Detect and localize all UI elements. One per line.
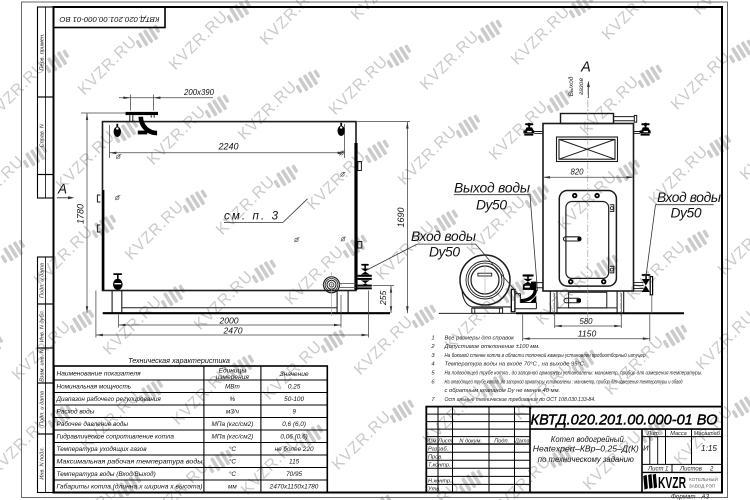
svg-text:Справ. N: Справ. N	[40, 123, 46, 147]
svg-text:2240: 2240	[217, 142, 238, 152]
svg-text:Подп.: Подп.	[494, 438, 509, 444]
svg-text:4: 4	[431, 362, 434, 368]
svg-text:%: %	[230, 396, 236, 403]
svg-text:Ост альные технические требова: Ост альные технические требования по ОСТ…	[445, 397, 596, 403]
svg-text:Габариты котла (длинна х ширин: Габариты котла (длинна х ширина х высота…	[57, 482, 203, 490]
svg-text:1150: 1150	[578, 329, 597, 339]
svg-text:70/95: 70/95	[286, 471, 302, 478]
svg-text:Лит.: Лит.	[646, 431, 660, 437]
svg-text:ЗАВОД РЭП: ЗАВОД РЭП	[689, 483, 715, 488]
svg-text:Инв. N дубл.: Инв. N дубл.	[40, 310, 46, 342]
svg-text:Формат: Формат	[671, 493, 696, 500]
svg-text:1:15: 1:15	[701, 444, 717, 453]
svg-text:Масса: Масса	[670, 431, 687, 437]
svg-text:0,6 (6,0): 0,6 (6,0)	[282, 421, 306, 428]
svg-text:Вход воды: Вход воды	[657, 190, 721, 205]
svg-text:Подп. и дата: Подп. и дата	[40, 391, 46, 426]
svg-text:Вход воды: Вход воды	[411, 229, 476, 244]
svg-text:50-100: 50-100	[284, 396, 304, 403]
svg-text:°С: °С	[229, 445, 237, 453]
svg-text:2: 2	[709, 467, 714, 473]
svg-text:Выход воды: Выход воды	[454, 180, 530, 195]
svg-text:Утв.: Утв.	[427, 487, 441, 493]
svg-text:м3/ч: м3/ч	[226, 408, 240, 415]
svg-text:МВт: МВт	[225, 383, 241, 390]
svg-text:газов: газов	[578, 78, 585, 95]
svg-text:Разраб.: Разраб.	[428, 446, 448, 452]
svg-text:На подводящей трубе котла , д: На подводящей трубе котла , до запорной …	[445, 370, 703, 377]
svg-text:1690: 1690	[396, 207, 406, 227]
svg-text:N докум.: N докум.	[459, 438, 482, 444]
svg-text:Допустимое отклонение ±100 мм: Допустимое отклонение ±100 мм.	[444, 344, 540, 350]
svg-text:Лист: Лист	[647, 467, 663, 473]
svg-text:°С: °С	[229, 470, 237, 478]
svg-text:измерения: измерения	[216, 374, 249, 381]
svg-text:КВТД.020.201.00.000-01 ВО: КВТД.020.201.00.000-01 ВО	[59, 15, 159, 24]
svg-text:Heatexpert–КВр–0,25–Д(К): Heatexpert–КВр–0,25–Д(К)	[533, 445, 639, 454]
svg-text:Температура уходящих газов: Температура уходящих газов	[57, 445, 148, 453]
svg-text:КОТЕЛЬНЫЙ: КОТЕЛЬНЫЙ	[689, 475, 718, 482]
svg-text:А: А	[580, 60, 591, 76]
svg-text:Подп. и дата: Подп. и дата	[40, 263, 46, 298]
svg-text:2000: 2000	[218, 315, 238, 325]
svg-text:2470: 2470	[222, 325, 242, 335]
svg-text:1780: 1780	[76, 204, 86, 224]
svg-text:Взам. инв. N: Взам. инв. N	[40, 348, 46, 382]
svg-text:200х390: 200х390	[183, 88, 215, 97]
svg-text:1: 1	[665, 467, 668, 473]
svg-text:Масштаб: Масштаб	[694, 431, 721, 437]
svg-text:Пров.: Пров.	[428, 454, 443, 460]
svg-text:Дата: Дата	[514, 438, 530, 444]
svg-text:Рабочее давление воды: Рабочее давление воды	[57, 420, 129, 428]
svg-text:Выход: Выход	[567, 76, 575, 96]
svg-text:0,06 (0,6): 0,06 (0,6)	[280, 433, 307, 440]
svg-text:°С: °С	[229, 457, 237, 465]
svg-text:Техническая характеристика: Техническая характеристика	[128, 356, 230, 365]
svg-text:KVZR: KVZR	[658, 475, 686, 492]
svg-text:не более 220: не более 220	[275, 445, 314, 453]
svg-text:Номинальная мощность: Номинальная мощность	[57, 383, 132, 390]
svg-text:МПа (кгс/см2): МПа (кгс/см2)	[212, 433, 254, 440]
svg-text:мм: мм	[228, 483, 237, 490]
svg-text:1: 1	[431, 335, 434, 341]
svg-text:А: А	[57, 182, 67, 197]
svg-text:с обратным клапаном Dу не мен: с обратным клапаном Dу не менее 40 мм.	[445, 388, 561, 394]
svg-text:Перв. примен.: Перв. примен.	[40, 33, 46, 70]
svg-text:Инв. N подл.: Инв. N подл.	[40, 447, 46, 480]
svg-text:2470х1150х1780: 2470х1150х1780	[269, 483, 319, 490]
svg-text:На отводящей трубе котла ,до з: На отводящей трубе котла ,до запорной ар…	[445, 378, 684, 385]
svg-text:9: 9	[292, 408, 296, 415]
svg-text:Котел водогрейный: Котел водогрейный	[551, 435, 625, 444]
svg-text:Диапазон рабочего регулировани: Диапазон рабочего регулирования	[56, 395, 162, 403]
svg-text:А3: А3	[701, 493, 710, 500]
svg-text:Значение: Значение	[280, 371, 309, 378]
svg-text:по техническому заданию: по техническому заданию	[538, 455, 634, 464]
svg-text:КВТД.020.201.00.000-01 ВО: КВТД.020.201.00.000-01 ВО	[531, 412, 718, 429]
svg-text:Листов: Листов	[679, 467, 702, 473]
svg-text:255: 255	[378, 290, 388, 306]
svg-text:Расход воды: Расход воды	[57, 407, 95, 415]
svg-text:Dy50: Dy50	[429, 245, 460, 260]
svg-text:Н.контр.: Н.контр.	[428, 479, 452, 485]
svg-text:Температура воды на входе 70°: Температура воды на входе 70°С , на выхо…	[445, 362, 586, 368]
svg-text:Гидравлическое сопротивление к: Гидравлическое сопротивление котла	[57, 432, 175, 440]
svg-text:Температура воды (Вход/Выход): Температура воды (Вход/Выход)	[57, 470, 156, 478]
svg-text:Все размеры для справок: Все размеры для справок	[445, 335, 515, 341]
svg-text:Изм.: Изм.	[426, 438, 438, 444]
svg-text:Dy50: Dy50	[671, 206, 702, 221]
svg-text:Наименование показателя: Наименование показателя	[57, 371, 142, 378]
svg-text:Максимальная рабочая температу: Максимальная рабочая температура воды	[57, 457, 203, 465]
svg-text:0,25: 0,25	[288, 383, 301, 390]
svg-text:Dy50: Dy50	[476, 197, 507, 212]
svg-text:И: И	[643, 444, 649, 453]
svg-text:115: 115	[289, 458, 300, 465]
svg-text:Т.контр.: Т.контр.	[428, 463, 451, 469]
svg-text:820: 820	[570, 167, 584, 176]
svg-text:МПа (кгс/см2): МПа (кгс/см2)	[212, 421, 254, 428]
svg-text:Лист: Лист	[437, 438, 453, 444]
svg-text:580: 580	[579, 317, 593, 326]
svg-text:На боковой стенке котла в обла: На боковой стенке котла в области топочн…	[445, 352, 647, 359]
